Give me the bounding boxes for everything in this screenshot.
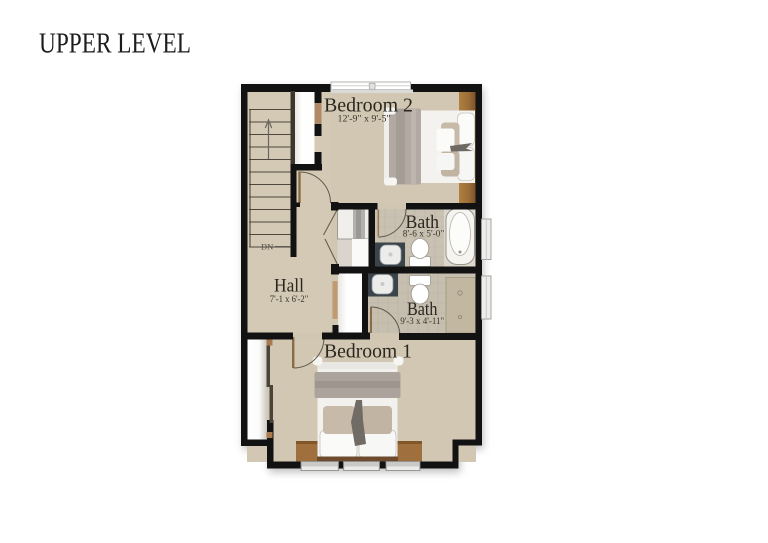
svg-text:Bedroom 1: Bedroom 1 — [324, 341, 412, 363]
svg-text:DN: DN — [261, 242, 273, 252]
svg-text:9'-3 x 4'-11": 9'-3 x 4'-11" — [400, 317, 444, 327]
svg-text:8'-6 x 5'-0": 8'-6 x 5'-0" — [403, 230, 445, 240]
svg-text:Bedroom 2: Bedroom 2 — [324, 95, 413, 117]
svg-text:12'-9" x 9'-5": 12'-9" x 9'-5" — [338, 115, 391, 125]
svg-text:7'-1 x 6'-2": 7'-1 x 6'-2" — [270, 294, 309, 304]
svg-text:UPPER LEVEL: UPPER LEVEL — [39, 29, 191, 60]
